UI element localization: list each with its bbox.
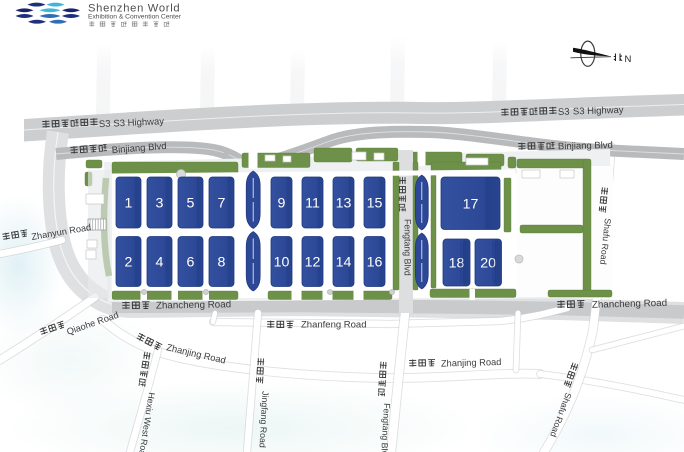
svg-text:S3: S3	[99, 119, 111, 131]
svg-text:17: 17	[463, 196, 479, 212]
svg-text:10: 10	[274, 255, 290, 271]
svg-text:S3: S3	[558, 107, 570, 118]
svg-text:14: 14	[336, 255, 352, 271]
svg-text:1: 1	[125, 196, 133, 212]
svg-text:N: N	[625, 54, 632, 65]
svg-text:12: 12	[305, 255, 321, 271]
svg-text:Zhancheng Road: Zhancheng Road	[592, 298, 667, 311]
svg-text:6: 6	[187, 255, 195, 271]
svg-text:8: 8	[218, 255, 226, 271]
svg-text:S3 Highway: S3 Highway	[113, 116, 164, 129]
svg-text:3: 3	[156, 196, 164, 212]
svg-text:15: 15	[367, 196, 383, 212]
svg-text:2: 2	[125, 255, 133, 271]
svg-text:7: 7	[218, 196, 226, 212]
svg-text:13: 13	[336, 196, 352, 212]
svg-text:18: 18	[449, 256, 465, 272]
svg-text:Binjiang Blvd: Binjiang Blvd	[558, 140, 613, 152]
svg-text:20: 20	[480, 256, 496, 272]
svg-text:16: 16	[367, 255, 383, 271]
svg-text:Fengtang Blvd: Fengtang Blvd	[403, 219, 413, 276]
svg-text:11: 11	[305, 196, 320, 212]
svg-text:Zhancheng Road: Zhancheng Road	[156, 299, 231, 311]
svg-text:4: 4	[156, 255, 164, 271]
svg-text:Zhanjing Road: Zhanjing Road	[441, 357, 502, 369]
svg-text:Zhanfeng Road: Zhanfeng Road	[301, 320, 367, 331]
svg-text:9: 9	[278, 196, 286, 212]
svg-text:5: 5	[187, 196, 195, 212]
svg-text:S3 Highway: S3 Highway	[573, 105, 624, 118]
svg-text:Exhibition & Convention Center: Exhibition & Convention Center	[88, 13, 182, 20]
